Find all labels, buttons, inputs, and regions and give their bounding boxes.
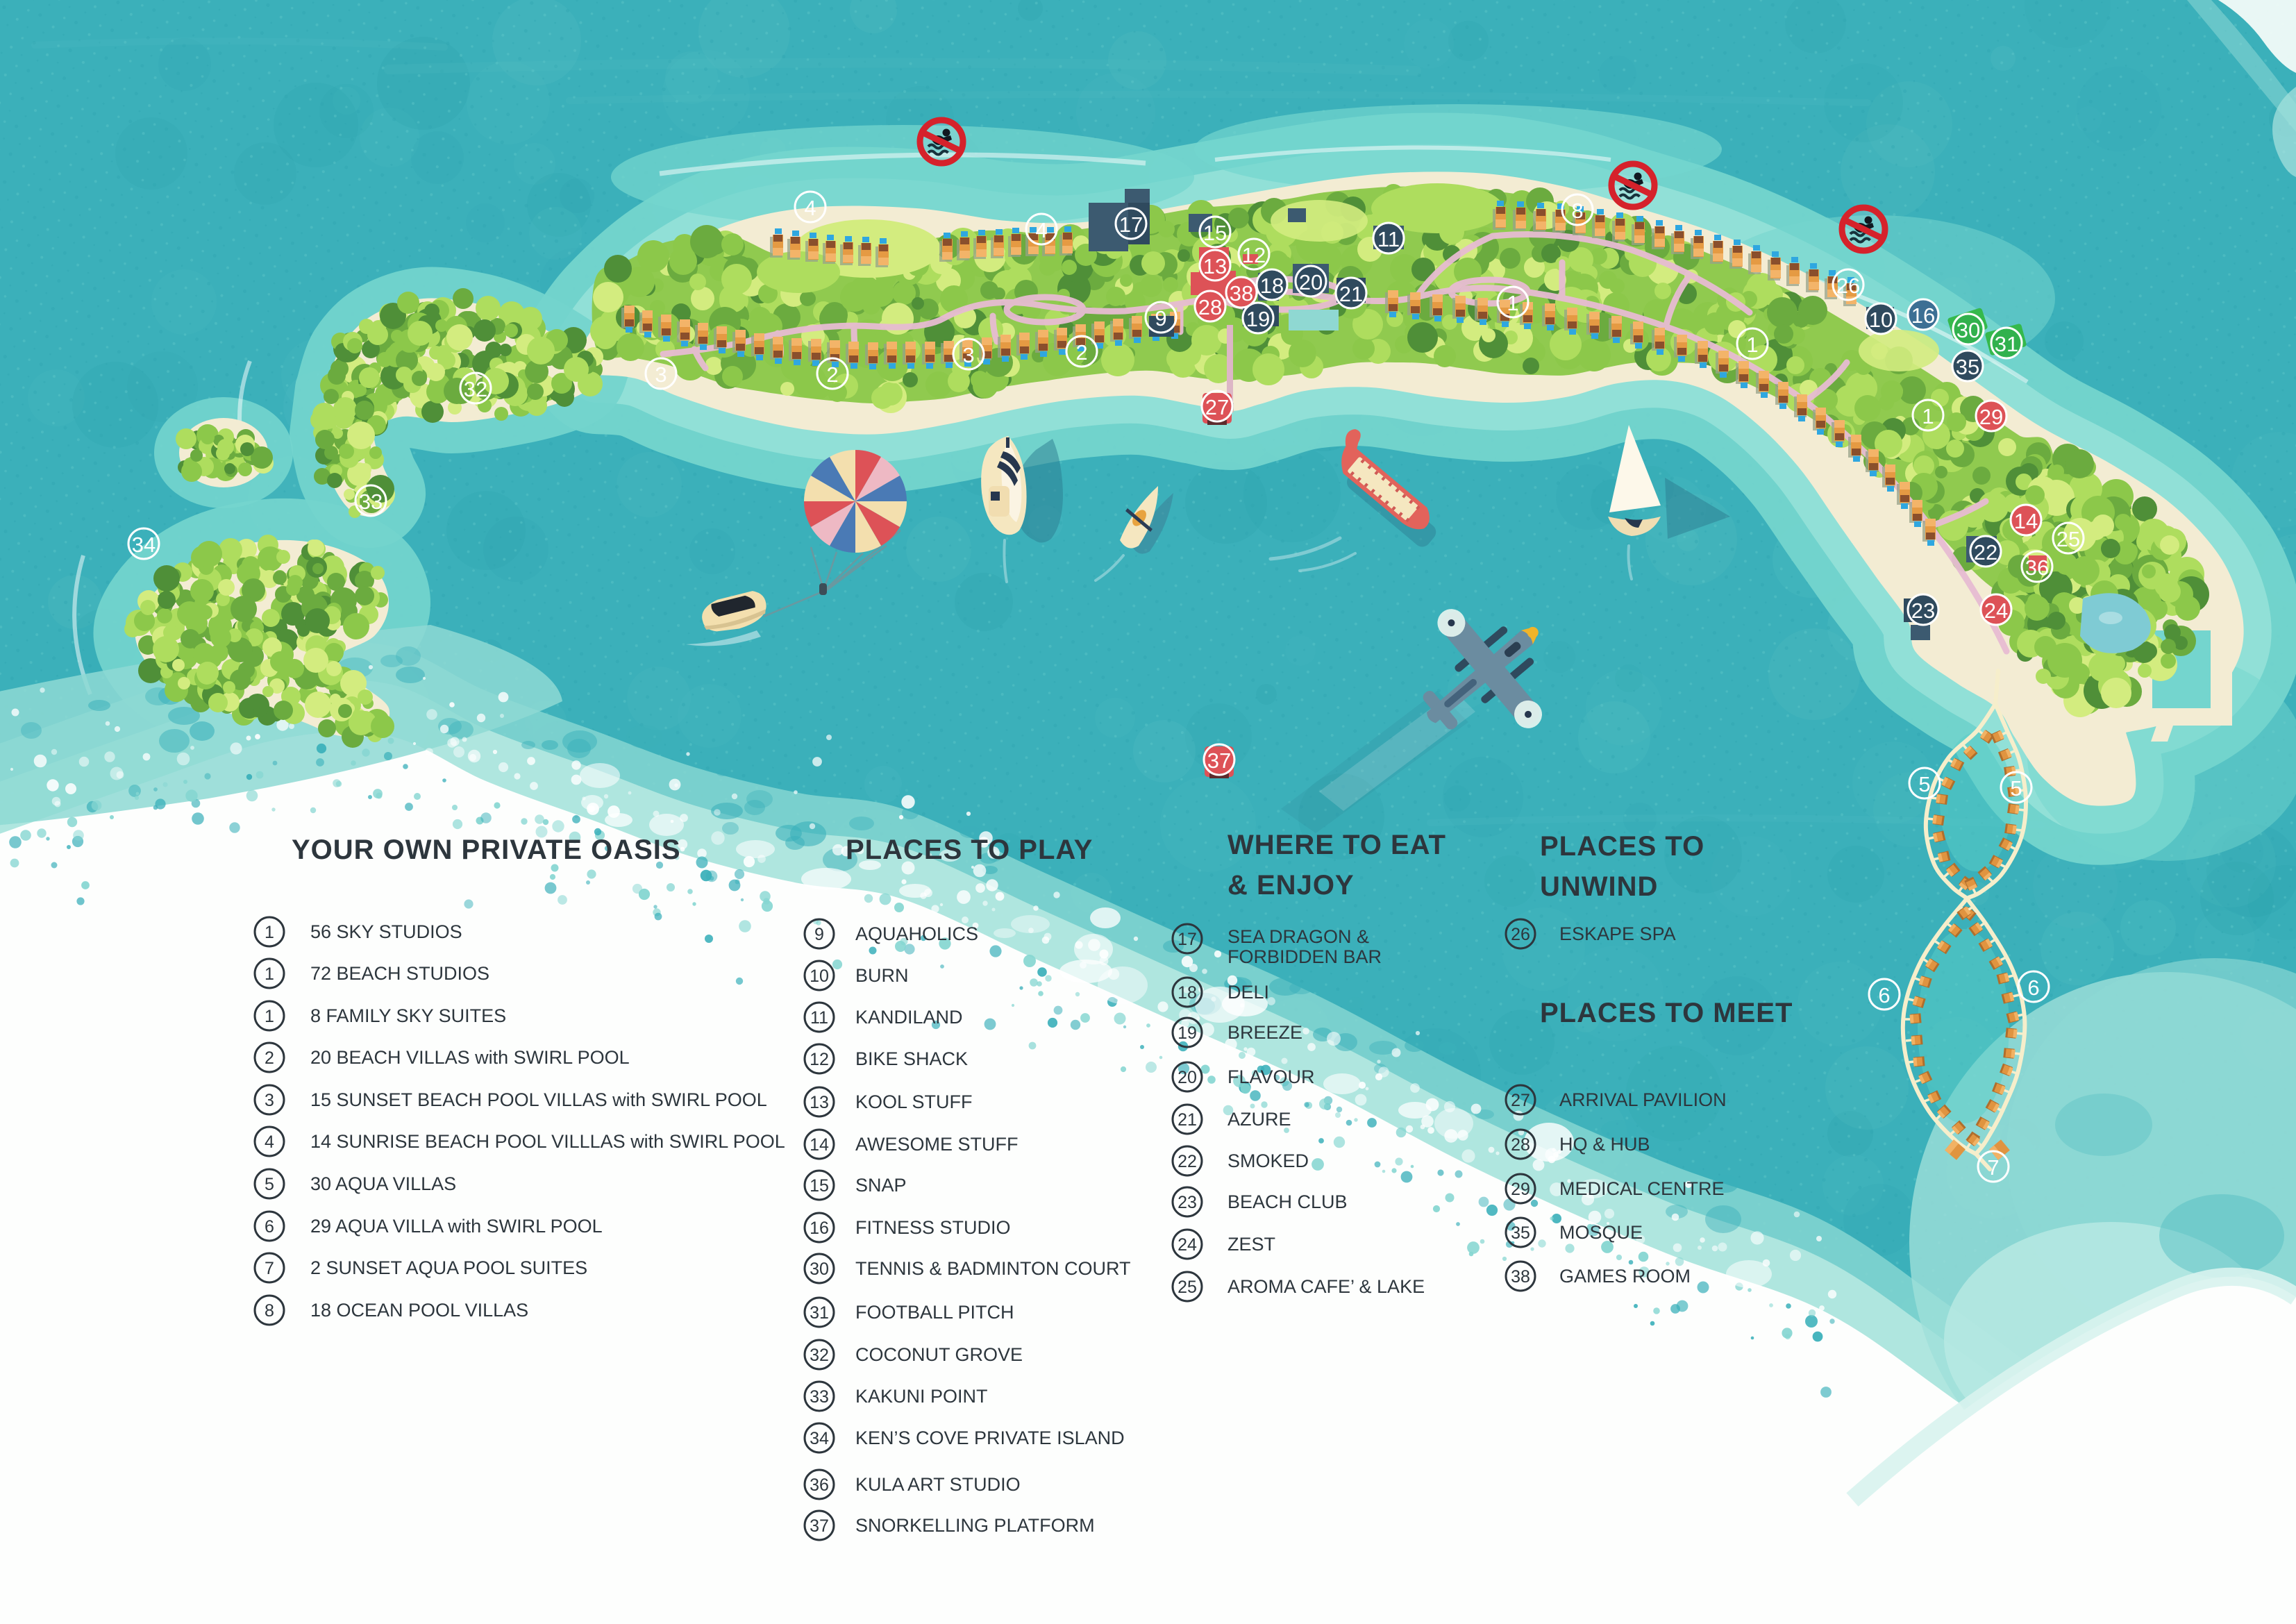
svg-text:UNWIND: UNWIND [1540, 871, 1658, 902]
svg-text:4: 4 [265, 1132, 274, 1152]
svg-text:31: 31 [1995, 332, 2018, 356]
svg-text:14 SUNRISE BEACH POOL VILLLAS: 14 SUNRISE BEACH POOL VILLLAS with SWIRL… [310, 1131, 785, 1152]
svg-text:36: 36 [2025, 555, 2049, 580]
svg-text:3: 3 [962, 343, 974, 367]
svg-text:KEN’S COVE PRIVATE ISLAND: KEN’S COVE PRIVATE ISLAND [855, 1428, 1125, 1448]
svg-text:26: 26 [1836, 274, 1860, 298]
svg-text:20 BEACH VILLAS with SWIRL PO: 20 BEACH VILLAS with SWIRL POOL [310, 1047, 630, 1068]
svg-text:PLACES TO MEET: PLACES TO MEET [1540, 998, 1793, 1028]
svg-text:72 BEACH STUDIOS: 72 BEACH STUDIOS [310, 963, 489, 984]
svg-text:25: 25 [2056, 527, 2080, 551]
svg-text:7: 7 [265, 1259, 274, 1278]
svg-text:2 SUNSET AQUA POOL SUITES: 2 SUNSET AQUA POOL SUITES [310, 1257, 587, 1278]
svg-text:DELI: DELI [1227, 982, 1269, 1003]
svg-text:16: 16 [810, 1219, 829, 1238]
svg-text:8: 8 [1571, 199, 1583, 223]
svg-text:26: 26 [1511, 925, 1530, 944]
svg-text:35: 35 [1511, 1223, 1530, 1243]
svg-text:1: 1 [1746, 333, 1758, 357]
svg-text:KAKUNI POINT: KAKUNI POINT [855, 1386, 988, 1407]
svg-text:3: 3 [265, 1091, 274, 1110]
svg-text:21: 21 [1339, 282, 1363, 306]
svg-text:30: 30 [810, 1259, 829, 1279]
svg-text:ARRIVAL PAVILION: ARRIVAL PAVILION [1559, 1089, 1727, 1110]
svg-text:& ENJOY: & ENJOY [1227, 870, 1355, 901]
svg-text:29: 29 [1979, 405, 2003, 429]
svg-text:COCONUT GROVE: COCONUT GROVE [855, 1344, 1023, 1365]
svg-text:36: 36 [810, 1475, 829, 1495]
svg-text:38: 38 [1230, 281, 1253, 305]
svg-text:8 FAMILY SKY SUITES: 8 FAMILY SKY SUITES [310, 1005, 506, 1026]
svg-text:PLACES TO PLAY: PLACES TO PLAY [846, 835, 1093, 865]
svg-text:17: 17 [1119, 212, 1143, 237]
svg-text:13: 13 [810, 1093, 829, 1112]
svg-text:6: 6 [2027, 976, 2039, 1000]
svg-text:16: 16 [1911, 303, 1935, 328]
svg-text:23: 23 [1911, 598, 1935, 623]
svg-text:19: 19 [1178, 1023, 1197, 1043]
svg-text:6: 6 [265, 1217, 274, 1237]
svg-text:SNORKELLING PLATFORM: SNORKELLING PLATFORM [855, 1515, 1095, 1536]
svg-text:56 SKY STUDIOS: 56 SKY STUDIOS [310, 921, 462, 942]
svg-text:28: 28 [1511, 1135, 1530, 1155]
svg-text:4: 4 [1035, 218, 1047, 242]
svg-text:WHERE TO EAT: WHERE TO EAT [1227, 830, 1446, 860]
svg-text:2: 2 [826, 362, 838, 387]
svg-text:ESKAPE SPA: ESKAPE SPA [1559, 923, 1676, 944]
svg-text:SNAP: SNAP [855, 1175, 907, 1196]
svg-text:1: 1 [1922, 404, 1934, 428]
svg-text:33: 33 [359, 489, 383, 514]
svg-text:29 AQUA VILLA with SWIRL POOL: 29 AQUA VILLA with SWIRL POOL [310, 1216, 603, 1237]
svg-text:22: 22 [1178, 1152, 1197, 1171]
svg-text:1: 1 [265, 964, 274, 984]
svg-text:30: 30 [1956, 318, 1980, 342]
svg-text:9: 9 [1155, 306, 1166, 330]
svg-text:PLACES TO: PLACES TO [1540, 831, 1704, 862]
svg-text:2: 2 [1075, 340, 1087, 365]
svg-text:34: 34 [132, 533, 156, 557]
svg-text:20: 20 [1299, 270, 1323, 294]
svg-text:33: 33 [810, 1387, 829, 1407]
svg-text:7: 7 [1987, 1155, 1999, 1180]
svg-text:TENNIS & BADMINTON COURT: TENNIS & BADMINTON COURT [855, 1258, 1131, 1279]
svg-text:13: 13 [1203, 254, 1227, 278]
svg-text:28: 28 [1198, 295, 1222, 319]
svg-text:FITNESS STUDIO: FITNESS STUDIO [855, 1217, 1011, 1238]
svg-text:17: 17 [1178, 930, 1197, 949]
svg-text:27: 27 [1511, 1091, 1530, 1110]
svg-text:25: 25 [1178, 1278, 1197, 1297]
svg-text:12: 12 [1242, 243, 1266, 267]
svg-text:5: 5 [265, 1175, 274, 1194]
svg-text:24: 24 [1178, 1235, 1197, 1255]
svg-text:15: 15 [1203, 221, 1227, 245]
svg-text:BIKE SHACK: BIKE SHACK [855, 1048, 968, 1069]
svg-text:AWESOME STUFF: AWESOME STUFF [855, 1134, 1019, 1155]
svg-text:MOSQUE: MOSQUE [1559, 1222, 1643, 1243]
svg-text:BREEZE: BREEZE [1227, 1022, 1302, 1043]
svg-text:10: 10 [810, 966, 829, 986]
svg-text:24: 24 [1984, 598, 2008, 623]
svg-text:37: 37 [1207, 748, 1231, 773]
svg-text:27: 27 [1205, 395, 1229, 419]
svg-text:5: 5 [2010, 776, 2022, 801]
svg-text:1: 1 [265, 923, 274, 942]
svg-text:SEA DRAGON &: SEA DRAGON & [1227, 926, 1369, 947]
svg-text:35: 35 [1956, 355, 1979, 379]
svg-text:11: 11 [810, 1008, 828, 1028]
svg-text:30 AQUA VILLAS: 30 AQUA VILLAS [310, 1173, 456, 1194]
svg-text:8: 8 [265, 1301, 274, 1321]
svg-text:18: 18 [1178, 983, 1197, 1003]
svg-text:KOOL STUFF: KOOL STUFF [855, 1091, 973, 1112]
svg-text:18: 18 [1260, 274, 1284, 298]
svg-text:34: 34 [810, 1429, 829, 1448]
svg-text:38: 38 [1511, 1267, 1530, 1287]
svg-text:14: 14 [2014, 509, 2038, 533]
svg-text:FORBIDDEN BAR: FORBIDDEN BAR [1227, 946, 1382, 967]
svg-text:AZURE: AZURE [1227, 1109, 1291, 1130]
svg-text:21: 21 [1178, 1110, 1197, 1130]
svg-text:KANDILAND: KANDILAND [855, 1007, 963, 1028]
svg-text:1: 1 [265, 1007, 274, 1026]
svg-text:YOUR OWN PRIVATE OASIS: YOUR OWN PRIVATE OASIS [292, 835, 681, 865]
svg-text:37: 37 [810, 1516, 829, 1536]
svg-text:FLAVOUR: FLAVOUR [1227, 1066, 1315, 1087]
svg-text:BEACH CLUB: BEACH CLUB [1227, 1191, 1348, 1212]
svg-text:31: 31 [810, 1303, 829, 1323]
svg-text:GAMES ROOM: GAMES ROOM [1559, 1266, 1691, 1287]
svg-text:19: 19 [1246, 307, 1270, 331]
svg-text:5: 5 [1918, 772, 1930, 796]
svg-text:32: 32 [464, 377, 487, 401]
svg-text:1: 1 [1507, 291, 1518, 315]
svg-text:18 OCEAN POOL VILLAS: 18 OCEAN POOL VILLAS [310, 1300, 528, 1321]
svg-text:AQUAHOLICS: AQUAHOLICS [855, 923, 978, 944]
svg-text:2: 2 [265, 1048, 274, 1068]
svg-text:23: 23 [1178, 1193, 1197, 1212]
svg-text:15: 15 [810, 1176, 829, 1196]
svg-text:22: 22 [1974, 540, 1997, 564]
svg-text:15 SUNSET BEACH POOL VILLAS wi: 15 SUNSET BEACH POOL VILLAS with SWIRL P… [310, 1089, 767, 1110]
svg-text:14: 14 [810, 1135, 829, 1155]
svg-text:4: 4 [804, 196, 816, 220]
svg-text:AROMA CAFE’ & LAKE: AROMA CAFE’ & LAKE [1227, 1276, 1425, 1297]
svg-text:ZEST: ZEST [1227, 1234, 1275, 1255]
svg-text:BURN: BURN [855, 965, 909, 986]
svg-text:11: 11 [1377, 227, 1400, 251]
svg-text:32: 32 [810, 1346, 829, 1365]
svg-text:9: 9 [814, 925, 824, 944]
svg-text:KULA ART STUDIO: KULA ART STUDIO [855, 1474, 1021, 1495]
svg-text:12: 12 [810, 1050, 829, 1069]
svg-text:FOOTBALL PITCH: FOOTBALL PITCH [855, 1302, 1014, 1323]
svg-text:29: 29 [1511, 1180, 1530, 1199]
svg-text:MEDICAL CENTRE: MEDICAL CENTRE [1559, 1178, 1725, 1199]
svg-text:HQ & HUB: HQ & HUB [1559, 1134, 1650, 1155]
svg-text:6: 6 [1878, 983, 1890, 1007]
svg-text:20: 20 [1178, 1068, 1197, 1087]
svg-text:SMOKED: SMOKED [1227, 1150, 1309, 1171]
svg-text:10: 10 [1869, 308, 1893, 332]
svg-text:3: 3 [655, 362, 667, 387]
